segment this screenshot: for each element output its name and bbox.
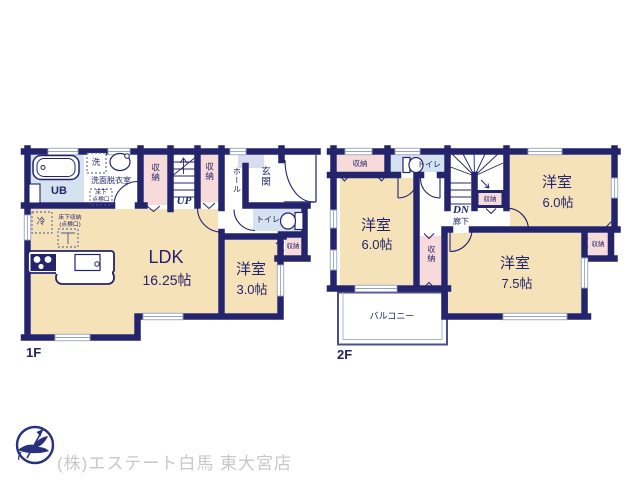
- bath-counter: [29, 184, 40, 203]
- floor1-label: 1F: [26, 345, 41, 360]
- storage-label: 収納: [426, 245, 435, 263]
- washroom-label: 洗面脱衣室: [91, 177, 131, 186]
- western-room-name: 洋室: [236, 262, 266, 278]
- ldk-area: 16.25帖: [142, 273, 191, 288]
- stairs-up-label: UP: [177, 196, 192, 208]
- underfloor-hatch-label: 床下 点検口: [92, 190, 109, 203]
- toilet-label: トイレ: [256, 216, 280, 225]
- storage-label: 収納: [353, 160, 368, 168]
- floor2-label: 2F: [337, 347, 352, 362]
- washer-label: 洗: [92, 158, 101, 167]
- western-se-area: 7.5帖: [501, 277, 532, 291]
- balcony-label: バルコニー: [370, 312, 415, 322]
- western-se-name: 洋室: [500, 256, 530, 272]
- toilet-label: トイレ: [417, 161, 441, 170]
- floorplan-drawing: [0, 0, 640, 480]
- underfloor-storage-label: 床下収納 (点検口): [58, 215, 81, 228]
- stairs-down-label: DN: [453, 205, 469, 217]
- hall-label: ホール: [232, 167, 241, 194]
- bathtub-icon: [33, 156, 79, 180]
- storage-label: 収納: [150, 163, 159, 182]
- ldk-name: LDK: [148, 248, 183, 267]
- fridge-label: 冷: [37, 217, 46, 226]
- storage-label: 収納: [484, 196, 497, 203]
- storage-label: 収納: [204, 162, 213, 181]
- western-room-area: 3.0帖: [236, 283, 267, 297]
- western-w-area: 6.0帖: [361, 238, 392, 252]
- western-ne-area: 6.0帖: [542, 196, 573, 210]
- western-ne-name: 洋室: [542, 175, 572, 191]
- stove-icon: [31, 254, 57, 271]
- bath-label: UB: [51, 186, 67, 198]
- entrance-label: 玄関: [259, 166, 269, 187]
- company-logo: [17, 427, 53, 463]
- toilet-icon: [281, 213, 304, 230]
- company-name: (株)エステート白馬 東大宮店: [57, 449, 292, 474]
- storage-label: 収納: [287, 243, 300, 250]
- kitchen-sink-icon: [75, 255, 100, 271]
- floor1-plan: [24, 148, 318, 341]
- western-w-name: 洋室: [361, 218, 391, 234]
- storage-label: 収納: [592, 241, 605, 248]
- floorplan-page: UB 洗面脱衣室 洗 床下 点検口 収納 収納 UP ホール 玄関 トイレ 収納…: [0, 0, 640, 480]
- sink-icon: [110, 154, 130, 171]
- stairs-up-icon: [171, 156, 197, 197]
- corridor-label: 廊下: [453, 218, 469, 227]
